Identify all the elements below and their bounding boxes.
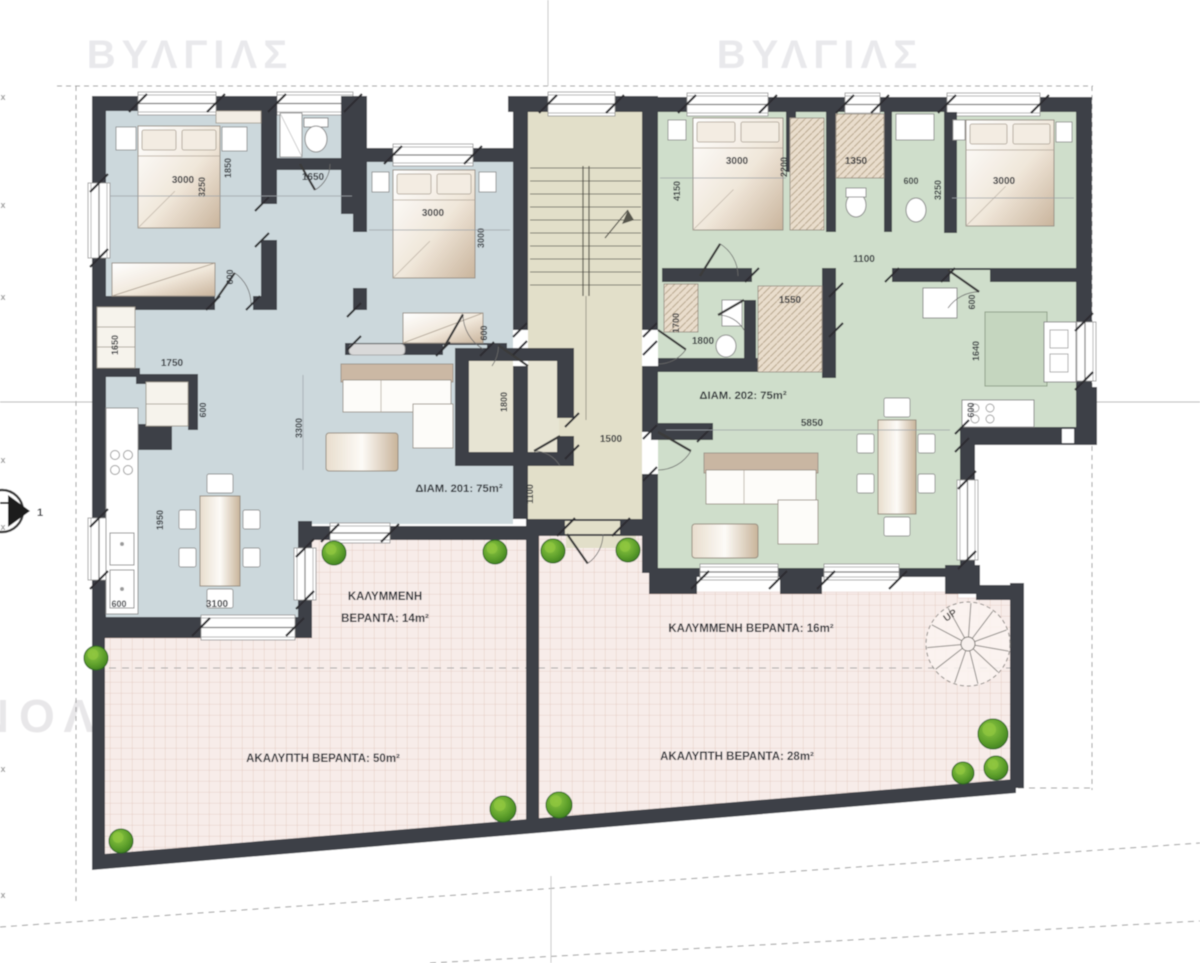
svg-text:x: x: [0, 292, 5, 302]
svg-text:3250: 3250: [197, 177, 207, 197]
svg-text:x: x: [0, 522, 5, 532]
svg-text:1500: 1500: [600, 434, 623, 445]
svg-text:ΚΑΛΥΜΜΕΝΗ: ΚΑΛΥΜΜΕΝΗ: [348, 591, 422, 603]
svg-text:1350: 1350: [845, 156, 868, 167]
svg-text:600: 600: [111, 599, 126, 609]
svg-text:5850: 5850: [801, 418, 824, 429]
svg-text:x: x: [0, 764, 5, 774]
svg-text:ΒΕΡΑΝΤΑ: 14m²: ΒΕΡΑΝΤΑ: 14m²: [341, 613, 429, 625]
svg-text:ΔΙΑΜ. 202: 75m²: ΔΙΑΜ. 202: 75m²: [699, 390, 786, 402]
svg-text:ΑΚΑΛΥΠΤΗ ΒΕΡΑΝΤΑ: 28m²: ΑΚΑΛΥΠΤΗ ΒΕΡΑΝΤΑ: 28m²: [660, 751, 814, 763]
svg-text:3000: 3000: [476, 228, 486, 248]
svg-text:1100: 1100: [853, 254, 875, 265]
svg-text:3000: 3000: [726, 156, 749, 167]
svg-text:1850: 1850: [223, 158, 233, 178]
svg-text:600: 600: [479, 325, 489, 340]
svg-text:3000: 3000: [422, 208, 445, 219]
svg-text:x: x: [0, 92, 5, 102]
svg-text:2200: 2200: [779, 157, 789, 177]
svg-text:3250: 3250: [933, 180, 943, 200]
svg-text:ΚΑΛΥΜΜΕΝΗ ΒΕΡΑΝΤΑ: 16m²: ΚΑΛΥΜΜΕΝΗ ΒΕΡΑΝΤΑ: 16m²: [668, 623, 833, 635]
svg-text:1: 1: [37, 507, 43, 519]
svg-text:3000: 3000: [172, 175, 195, 186]
svg-text:1750: 1750: [161, 358, 184, 369]
svg-text:3300: 3300: [294, 418, 304, 438]
svg-text:ΒΥΛΓΙΛΣ: ΒΥΛΓΙΛΣ: [717, 33, 923, 77]
svg-text:600: 600: [903, 176, 918, 186]
svg-text:600: 600: [966, 402, 976, 417]
svg-text:1650: 1650: [110, 335, 120, 355]
svg-text:600: 600: [198, 402, 208, 417]
svg-text:3100: 3100: [206, 599, 229, 610]
svg-text:600: 600: [967, 294, 977, 309]
svg-text:x: x: [0, 890, 5, 900]
svg-text:1800: 1800: [499, 392, 509, 412]
svg-text:1800: 1800: [692, 336, 715, 347]
svg-text:ΒΥΛΓΙΛΣ: ΒΥΛΓΙΛΣ: [87, 33, 293, 77]
svg-text:ΑΚΑΛΥΠΤΗ ΒΕΡΑΝΤΑ: 50m²: ΑΚΑΛΥΠΤΗ ΒΕΡΑΝΤΑ: 50m²: [246, 753, 400, 765]
svg-text:1100: 1100: [525, 484, 535, 504]
svg-text:3000: 3000: [993, 176, 1016, 187]
svg-text:x: x: [0, 200, 5, 210]
svg-text:1550: 1550: [779, 295, 802, 306]
svg-text:ΔΙΑΜ. 201: 75m²: ΔΙΑΜ. 201: 75m²: [415, 483, 502, 495]
svg-text:1700: 1700: [671, 313, 681, 333]
svg-text:1650: 1650: [302, 172, 325, 183]
svg-text:1640: 1640: [971, 341, 981, 361]
svg-text:x: x: [0, 455, 5, 465]
svg-text:4150: 4150: [672, 181, 682, 201]
svg-text:600: 600: [225, 269, 235, 284]
svg-text:ΝΟΛ: ΝΟΛ: [0, 690, 104, 742]
svg-text:1950: 1950: [155, 510, 165, 530]
